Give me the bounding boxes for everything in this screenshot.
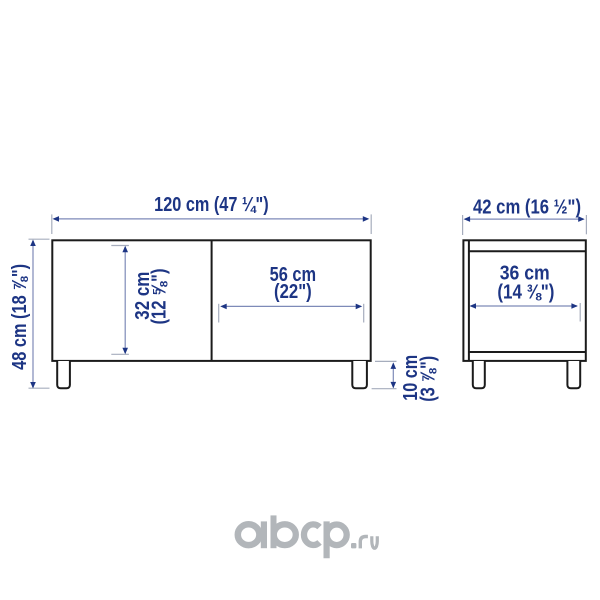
svg-text:48 cm (18 ⅞"): 48 cm (18 ⅞")	[9, 264, 31, 370]
svg-text:120 cm (47 ¼"): 120 cm (47 ¼")	[154, 194, 269, 216]
svg-text:(14 ⅜"): (14 ⅜")	[497, 282, 554, 304]
svg-text:(3 ⅞"): (3 ⅞")	[418, 356, 440, 402]
svg-text:(22"): (22")	[274, 281, 312, 303]
svg-text:42 cm (16 ½"): 42 cm (16 ½")	[473, 197, 581, 219]
svg-text:(12 ⅝"): (12 ⅝")	[148, 269, 170, 325]
